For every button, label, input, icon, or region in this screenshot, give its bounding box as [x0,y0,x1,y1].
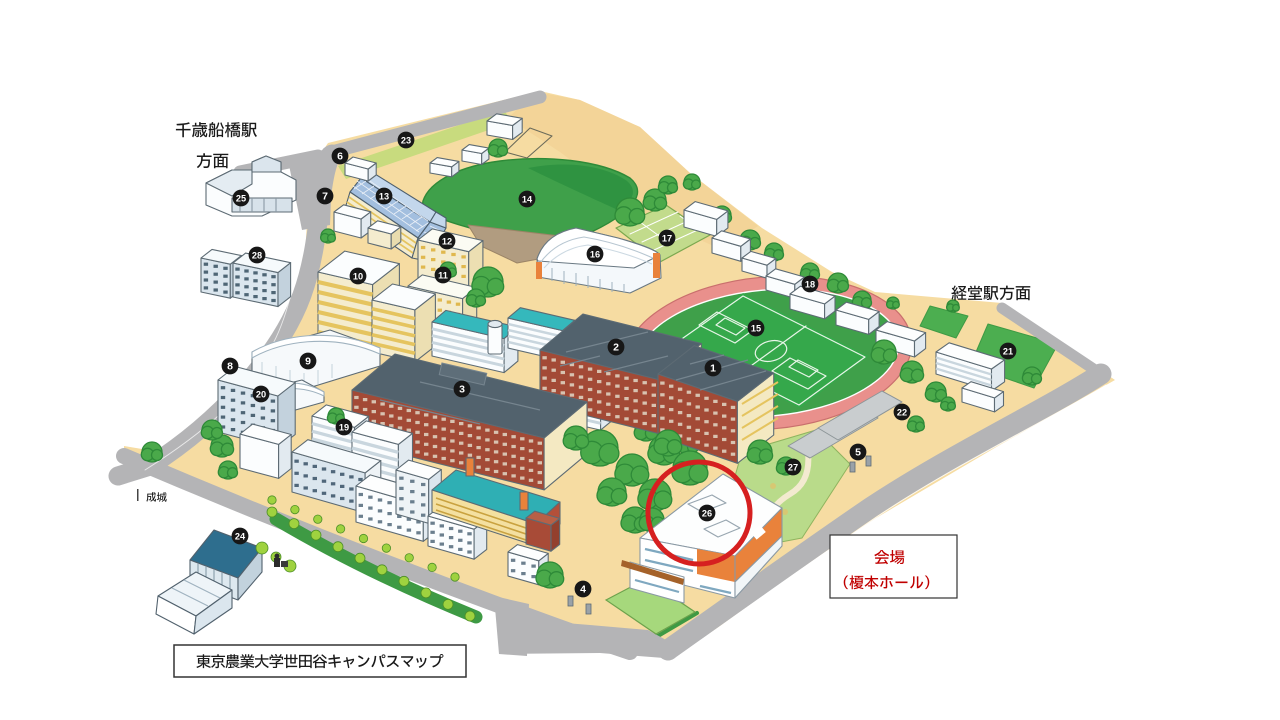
svg-text:20: 20 [256,389,266,399]
svg-text:2: 2 [613,341,619,353]
svg-text:16: 16 [590,249,600,259]
svg-text:1: 1 [710,362,716,374]
svg-text:14: 14 [522,194,533,204]
svg-text:26: 26 [702,508,712,518]
svg-text:17: 17 [662,233,672,243]
svg-text:24: 24 [235,531,246,541]
svg-text:4: 4 [580,583,586,595]
svg-text:15: 15 [751,323,761,333]
svg-text:23: 23 [401,135,411,145]
svg-text:25: 25 [236,193,246,203]
svg-text:8: 8 [227,360,233,372]
svg-text:28: 28 [252,250,262,260]
svg-text:22: 22 [897,407,907,417]
svg-text:13: 13 [379,191,389,201]
svg-text:12: 12 [442,236,452,246]
svg-text:3: 3 [459,383,465,395]
svg-text:11: 11 [438,270,448,280]
svg-text:9: 9 [305,355,311,367]
svg-text:10: 10 [353,271,363,281]
svg-text:5: 5 [855,446,861,458]
svg-text:18: 18 [805,279,815,289]
svg-text:27: 27 [788,462,798,472]
svg-text:19: 19 [339,422,349,432]
svg-text:7: 7 [322,190,328,202]
svg-text:21: 21 [1003,346,1013,356]
svg-text:6: 6 [337,150,343,162]
